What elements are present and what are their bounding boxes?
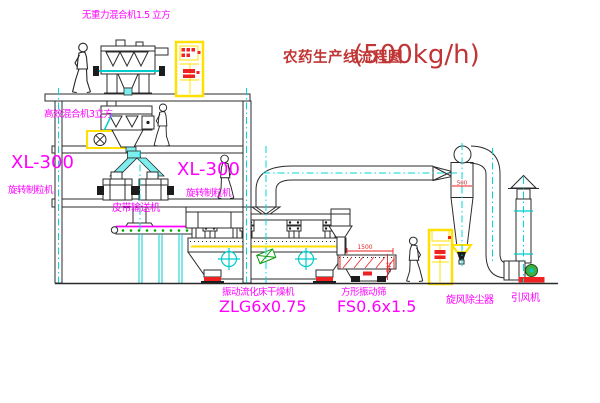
sieve-length-dimension: 1500: [357, 244, 372, 251]
label-fan: 引风机: [511, 294, 540, 304]
person-second-floor: [154, 104, 169, 146]
label-granulator-mid-model: XL-300: [177, 161, 240, 179]
label-sieve-model: FS0.6x1.5: [337, 299, 416, 315]
label-gravity-mixer: 无重力混合机1.5 立方: [82, 11, 170, 21]
person-ground-floor: [407, 237, 423, 281]
label-dryer-model: ZLG6x0.75: [219, 299, 307, 315]
label-high-efficiency-mixer: 高效混合机3立方: [44, 110, 113, 120]
pesticide-line-flow-diagram: 1500 541 500 农药生产线流程图 (500kg/h) 无重力混合机1.…: [0, 0, 600, 403]
sieve-height-dimension: 541: [386, 261, 393, 273]
person-top-floor: [73, 43, 91, 92]
page-title-capacity: (500kg/h): [353, 42, 480, 68]
cyclone-diameter-dimension: 500: [457, 181, 468, 187]
label-granulator-left-name: 旋转制粒机: [8, 186, 53, 196]
control-cabinet-top: [176, 42, 203, 96]
belt-conveyor: [111, 227, 196, 284]
induced-draft-fan: [504, 261, 545, 283]
column-overlay: [243, 207, 251, 283]
control-cabinet-right: [429, 230, 452, 284]
label-granulator-left-model: XL-300: [11, 154, 74, 172]
label-cyclone: 旋风除尘器: [446, 296, 494, 306]
gravity-free-mixer: [93, 40, 168, 95]
outlet-pipe: [470, 146, 507, 278]
label-granulator-mid-name: 旋转制粒机: [186, 189, 231, 199]
label-belt-conveyor: 皮带输送机: [112, 204, 160, 214]
